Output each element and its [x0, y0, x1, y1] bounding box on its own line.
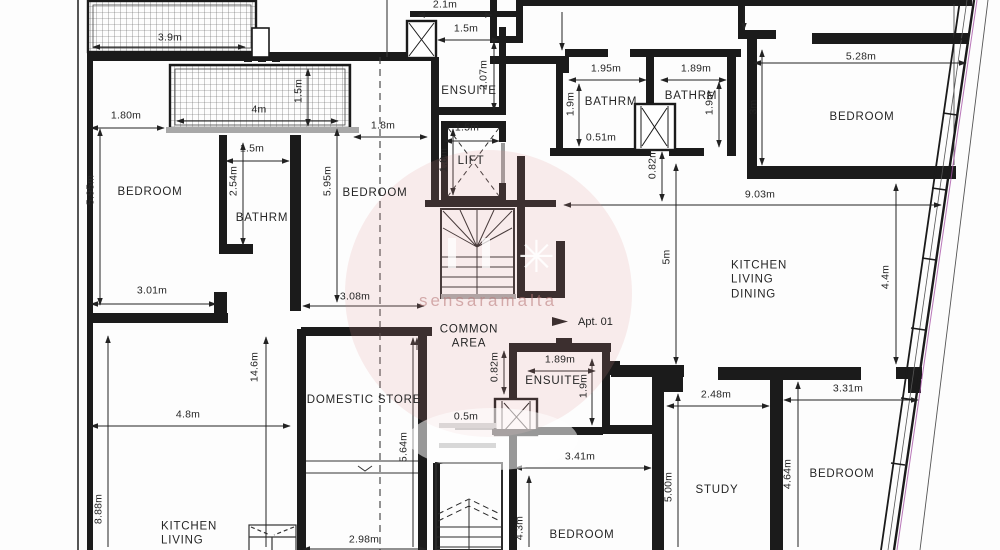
dimension-label: 1.5m: [455, 121, 479, 134]
dimension-label: 2.54m: [227, 166, 240, 196]
slanted-facade: [881, 0, 988, 550]
facade-accent-line: [897, 0, 977, 550]
dimension-label: 0.82m: [488, 352, 501, 382]
balcony-sill: [166, 127, 359, 133]
dimension-label: 3.31m: [833, 382, 863, 395]
room-label: BEDROOM: [117, 185, 182, 199]
dimension-label: 1.5m: [292, 79, 305, 103]
dimension-label: 1.9m: [703, 91, 716, 115]
room-label: ENSUITE: [525, 374, 580, 388]
dimension-label: 1.5m: [454, 22, 478, 35]
dimension-label: 9.03m: [745, 188, 775, 201]
dimension-label: 4.64m: [781, 459, 794, 489]
dimension-label: 0.82m: [646, 149, 659, 179]
dimension-label: 5.95m: [321, 166, 334, 196]
dimension-label: 4.3m: [513, 516, 526, 540]
dimension-label: 3.9m: [158, 31, 182, 44]
room-label: BEDROOM: [549, 528, 614, 542]
room-label: BATHRM: [585, 95, 638, 109]
room-label: LIFT: [458, 154, 485, 168]
room-label: DOMESTIC STORE: [307, 393, 422, 407]
lift-door: [501, 143, 505, 183]
stairs-upper: [441, 209, 514, 298]
balcony-second: [166, 65, 359, 133]
room-label: KITCHEN LIVING: [161, 520, 217, 549]
dimension-label: 2.07m: [477, 60, 490, 90]
dimension-label: 1.8m: [437, 148, 450, 172]
dimension-label: 2.98m: [349, 533, 379, 546]
room-label: BEDROOM: [342, 186, 407, 200]
dimension-label: 1.8m: [371, 119, 395, 132]
dimension-label: 1.5m: [240, 142, 264, 155]
room-label: BEDROOM: [829, 110, 894, 124]
dimension-label: 5.00m: [662, 472, 675, 502]
dimension-label: 5m: [660, 250, 673, 265]
dimension-label: 3.01m: [137, 284, 167, 297]
room-label: STUDY: [696, 483, 739, 497]
dimension-label: 1.80m: [111, 109, 141, 122]
dimension-label: 3.41m: [565, 450, 595, 463]
dimension-label: 4.4m: [879, 265, 892, 289]
dimension-label: 3m: [747, 100, 760, 115]
dimension-label: 0.51m: [586, 131, 616, 144]
dimension-label: 3.08m: [340, 290, 370, 303]
store-shelf: [306, 461, 418, 473]
pillar-notch: [252, 28, 269, 57]
dimension-label: 2.1m: [433, 0, 457, 12]
dimension-label: 0.5m: [454, 410, 478, 423]
dimension-label: 5.95m: [84, 175, 97, 205]
dimension-label: 1.9m: [577, 374, 590, 398]
dimension-label: 14.6m: [248, 352, 261, 382]
dimension-label: 2.48m: [701, 388, 731, 401]
room-label: BATHRM: [236, 211, 289, 225]
cooker: [249, 525, 296, 550]
landing-edge: [441, 294, 516, 299]
dimension-label: 1.89m: [681, 62, 711, 75]
dimension-label: 5.64m: [397, 432, 410, 462]
room-label: COMMON AREA: [440, 323, 498, 352]
room-label: KITCHEN LIVING DINING: [731, 258, 787, 301]
dimension-label: 1.9m: [564, 92, 577, 116]
dimension-label: 5.28m: [846, 50, 876, 63]
dimension-label: 1.95m: [591, 62, 621, 75]
dimension-label: 4m: [252, 103, 267, 116]
dimension-label: 4.8m: [176, 408, 200, 421]
stairs-lower: [436, 463, 502, 550]
dimension-label: 8.88m: [92, 494, 105, 524]
dimension-label: 1.89m: [545, 353, 575, 366]
apartment-label: Apt. 01: [578, 316, 613, 328]
floor-plan: ✳ sensaramalta BEDROOMBATHRMBEDROOMENSUI…: [0, 0, 1000, 550]
apartment-entrance-arrow: [552, 317, 568, 326]
room-label: BEDROOM: [809, 467, 874, 481]
